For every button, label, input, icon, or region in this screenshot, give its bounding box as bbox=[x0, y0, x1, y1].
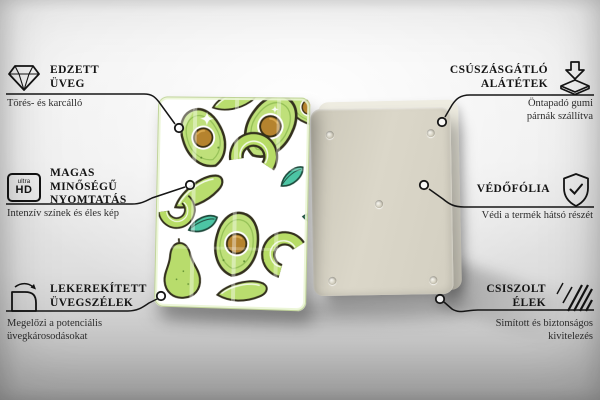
title-line: CSISZOLT bbox=[441, 283, 546, 297]
title-line: LEKEREKÍTETT bbox=[50, 283, 147, 297]
shield-check-icon bbox=[559, 172, 593, 208]
callout-anti-slip-pads: CSÚSZÁSGÁTLÓ ALÁTÉTEK Öntapadó gumi párn… bbox=[441, 61, 593, 123]
callout-title: VÉDŐFÓLIA bbox=[441, 183, 550, 197]
callout-title: EDZETT ÜVEG bbox=[50, 64, 99, 91]
title-line: VÉDŐFÓLIA bbox=[441, 183, 550, 197]
callout-tempered-glass: EDZETT ÜVEG Törés- és karcálló bbox=[7, 61, 159, 111]
rounded-corner-icon bbox=[7, 280, 41, 313]
rubber-pad bbox=[427, 129, 435, 137]
title-line: CSÚSZÁSGÁTLÓ bbox=[441, 64, 548, 78]
subtitle-line: Intenzív színek és éles kép bbox=[7, 208, 159, 221]
ultra-hd-icon: ultra HD bbox=[7, 173, 41, 202]
anti-slip-pads-icon bbox=[557, 60, 593, 96]
rubber-pad bbox=[328, 277, 336, 285]
subtitle-line: Öntapadó gumi bbox=[441, 98, 593, 111]
product-infographic: EDZETT ÜVEG Törés- és karcálló ultra HD … bbox=[0, 0, 600, 400]
title-line: ALÁTÉTEK bbox=[441, 78, 548, 92]
callout-title: CSISZOLT ÉLEK bbox=[441, 283, 546, 310]
callout-title: MAGAS MINŐSÉGŰ NYOMTATÁS bbox=[50, 167, 159, 208]
callout-title: LEKEREKÍTETT ÜVEGSZÉLEK bbox=[50, 283, 147, 310]
callout-subtitle: Öntapadó gumi párnák szállítva bbox=[441, 98, 593, 123]
product-back-board bbox=[310, 107, 453, 296]
callout-rounded-glass-edges: LEKEREKÍTETT ÜVEGSZÉLEK Megelőzi a poten… bbox=[7, 281, 159, 343]
callout-subtitle: Intenzív színek és éles kép bbox=[7, 208, 159, 221]
callout-high-quality-print: ultra HD MAGAS MINŐSÉGŰ NYOMTATÁS Intenz… bbox=[7, 171, 159, 221]
hatched-edges-icon bbox=[555, 281, 593, 313]
title-line: MAGAS MINŐSÉGŰ bbox=[50, 167, 159, 194]
subtitle-line: Simított és biztonságos bbox=[441, 318, 593, 331]
diamond-icon bbox=[7, 63, 41, 93]
subtitle-line: Törés- és karcálló bbox=[7, 98, 159, 111]
callout-title: CSÚSZÁSGÁTLÓ ALÁTÉTEK bbox=[441, 64, 548, 91]
subtitle-line: üvegkárosodásokat bbox=[7, 331, 159, 344]
callout-subtitle: Védi a termék hátsó részét bbox=[441, 210, 593, 223]
rubber-pad bbox=[429, 276, 437, 284]
title-line: ÜVEG bbox=[50, 78, 99, 92]
title-line: ÜVEGSZÉLEK bbox=[50, 297, 147, 311]
title-line: EDZETT bbox=[50, 64, 99, 78]
avocado-pattern bbox=[154, 96, 311, 311]
callout-subtitle: Megelőzi a potenciális üvegkárosodásokat bbox=[7, 318, 159, 343]
subtitle-line: kivitelezés bbox=[441, 331, 593, 344]
subtitle-line: párnák szállítva bbox=[441, 111, 593, 124]
callout-subtitle: Simított és biztonságos kivitelezés bbox=[441, 318, 593, 343]
subtitle-line: Védi a termék hátsó részét bbox=[441, 210, 593, 223]
subtitle-line: Megelőzi a potenciális bbox=[7, 318, 159, 331]
rubber-pad bbox=[326, 131, 334, 139]
product-front-board bbox=[154, 96, 311, 311]
callout-protective-film: VÉDŐFÓLIA Védi a termék hátsó részét bbox=[441, 173, 593, 223]
callout-subtitle: Törés- és karcálló bbox=[7, 98, 159, 111]
title-line: NYOMTATÁS bbox=[50, 194, 159, 208]
ultra-hd-icon-label-bottom: HD bbox=[16, 185, 33, 196]
title-line: ÉLEK bbox=[441, 297, 546, 311]
callout-polished-edges: CSISZOLT ÉLEK Simított és biztonságos ki… bbox=[441, 281, 593, 343]
rubber-pad bbox=[375, 200, 383, 208]
